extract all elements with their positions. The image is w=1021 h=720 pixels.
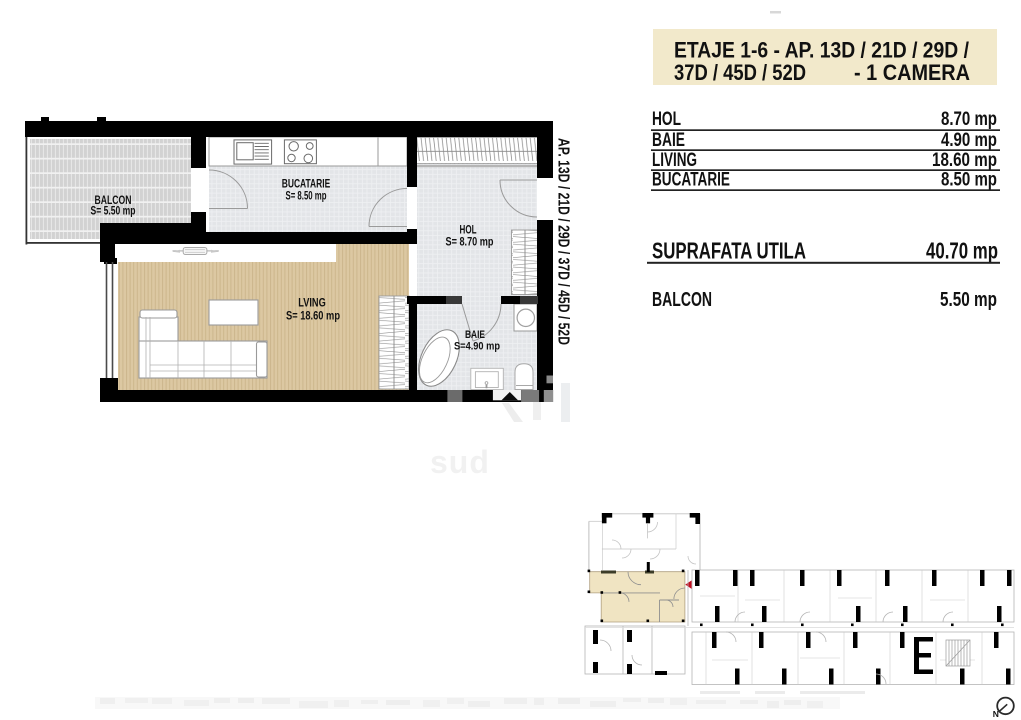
svg-text:sud: sud	[430, 444, 490, 480]
svg-text:18.60 mp: 18.60 mp	[932, 150, 997, 171]
svg-text:- 1 CAMERA: - 1 CAMERA	[854, 60, 970, 85]
svg-text:SUPRAFATA UTILA: SUPRAFATA UTILA	[652, 238, 806, 264]
svg-text:8.70 mp: 8.70 mp	[941, 109, 997, 130]
svg-text:ETAJE 1-6 - AP. 13D / 21D /: ETAJE 1-6 - AP. 13D / 21D / 29D /	[674, 38, 970, 63]
svg-text:40.70 mp: 40.70 mp	[926, 238, 998, 264]
svg-text:S= 5.50 mp: S= 5.50 mp	[91, 204, 136, 218]
svg-text:BAIE: BAIE	[465, 329, 485, 341]
svg-text:LVING: LVING	[298, 296, 326, 310]
svg-text:AP. 13D / 21D / 29D / 37D / 4: AP. 13D / 21D / 29D / 37D / 45D / 52D	[555, 138, 572, 345]
svg-text:8.50 mp: 8.50 mp	[941, 170, 997, 191]
svg-text:S= 8.70 mp: S= 8.70 mp	[446, 235, 494, 249]
svg-text:HOL: HOL	[652, 109, 681, 130]
svg-text:N: N	[993, 709, 999, 719]
svg-text:BALCON: BALCON	[652, 289, 712, 311]
svg-text:BUCATARIE: BUCATARIE	[652, 170, 730, 191]
svg-text:S=4.90 mp: S=4.90 mp	[454, 341, 500, 353]
svg-text:BAIE: BAIE	[652, 130, 685, 151]
svg-text:5.50 mp: 5.50 mp	[940, 289, 997, 311]
svg-text:S= 18.60 mp: S= 18.60 mp	[286, 309, 340, 323]
svg-text:4.90 mp: 4.90 mp	[941, 130, 997, 151]
svg-text:37D / 45D / 52D: 37D / 45D / 52D	[674, 60, 806, 85]
svg-text:S= 8.50 mp: S= 8.50 mp	[286, 189, 327, 203]
svg-text:LIVING: LIVING	[652, 150, 697, 171]
